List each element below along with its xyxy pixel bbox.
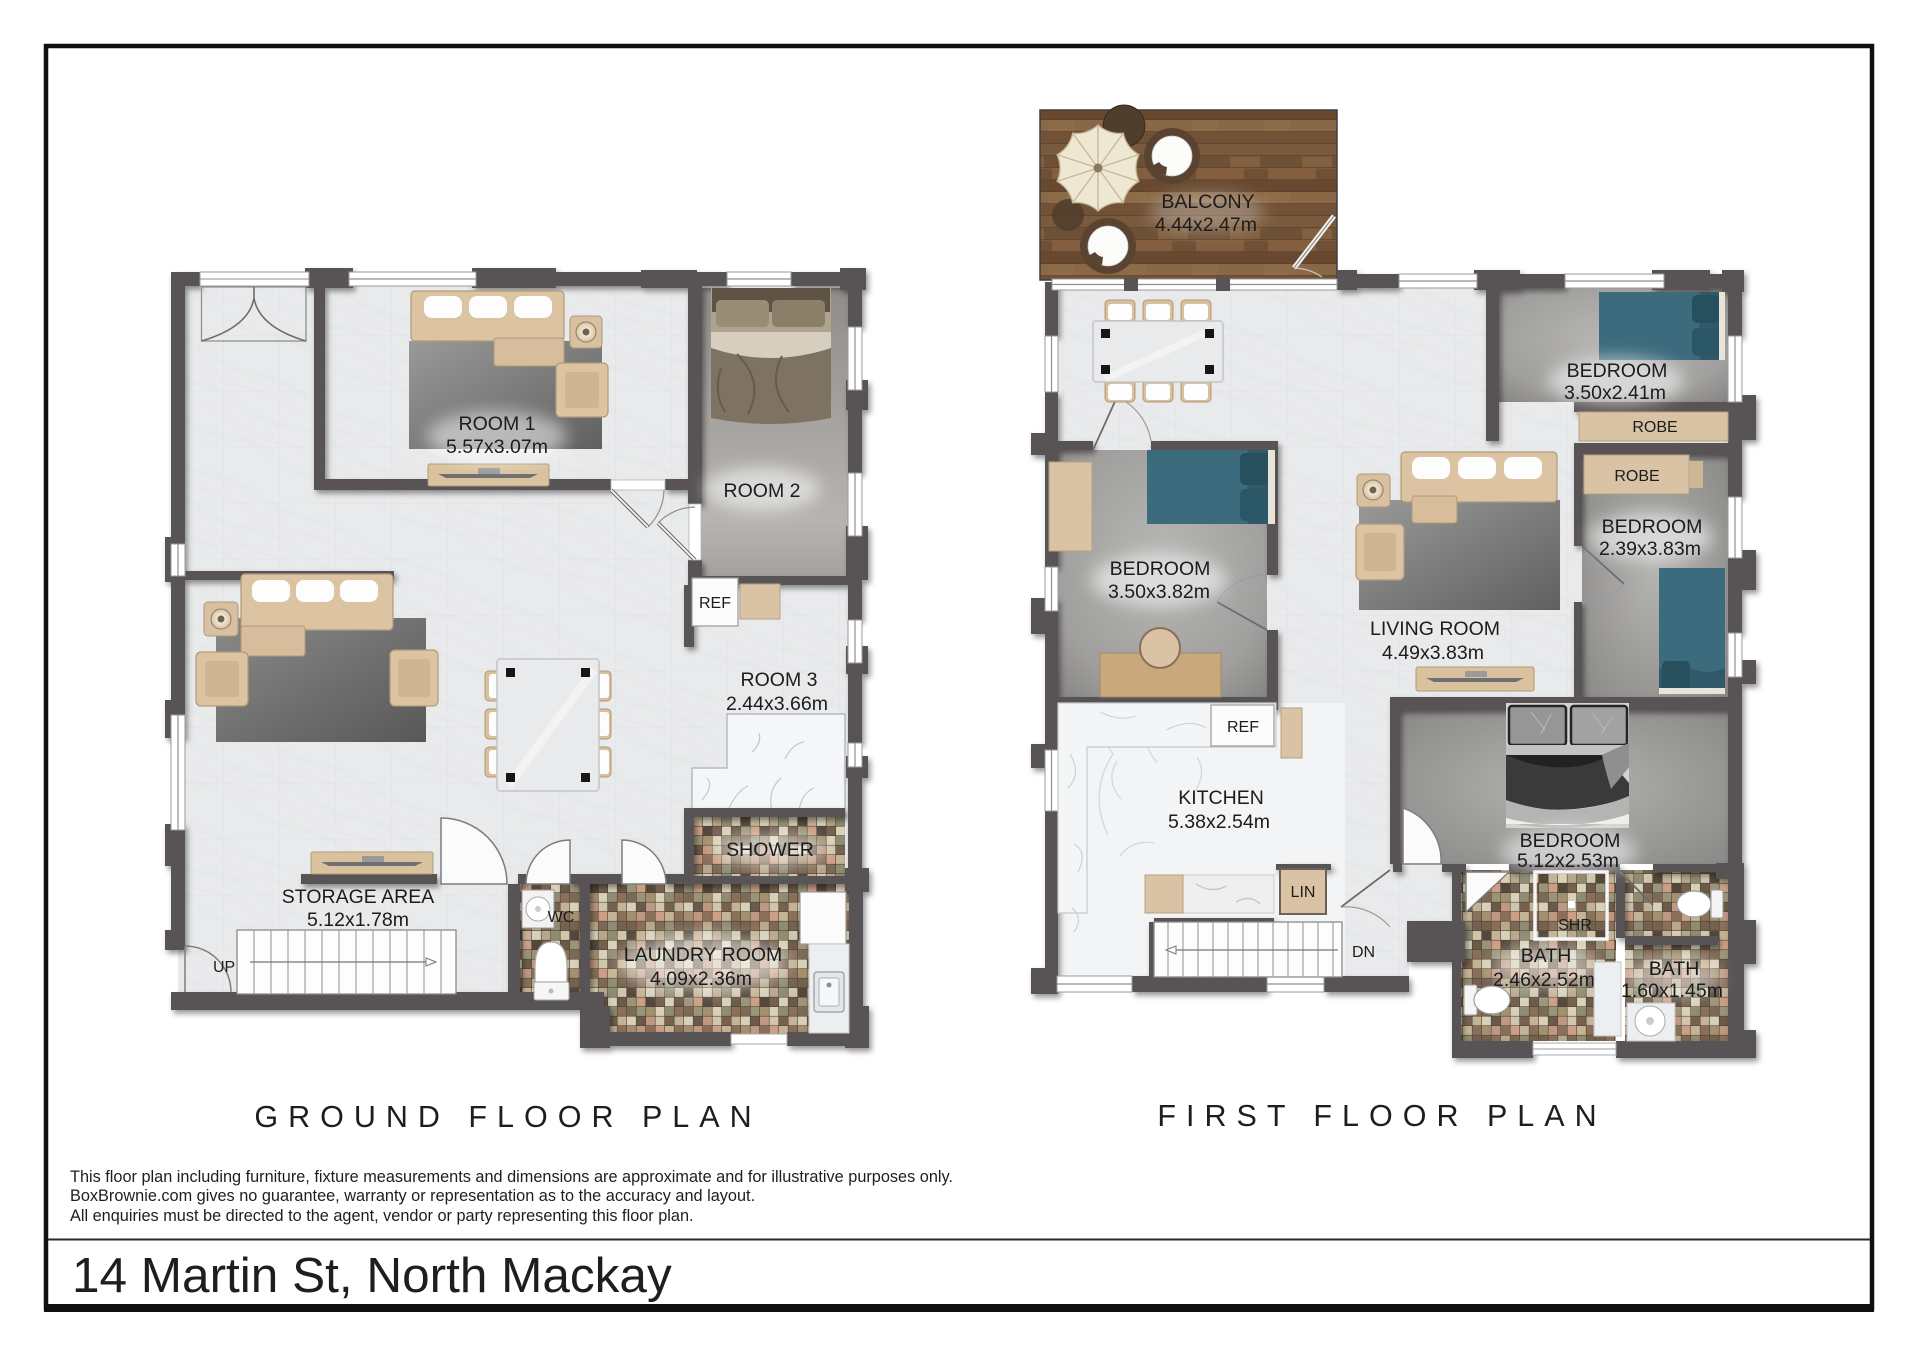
svg-text:SHR: SHR (1558, 917, 1592, 934)
svg-text:1.60x1.45m: 1.60x1.45m (1621, 980, 1723, 1002)
svg-text:GROUND FLOOR PLAN: GROUND FLOOR PLAN (254, 1100, 761, 1134)
svg-text:REF: REF (699, 595, 731, 612)
svg-text:BALCONY: BALCONY (1161, 191, 1254, 213)
svg-text:5.12x2.53m: 5.12x2.53m (1517, 850, 1619, 872)
svg-text:BEDROOM: BEDROOM (1520, 830, 1621, 852)
svg-text:2.44x3.66m: 2.44x3.66m (726, 693, 828, 715)
svg-text:4.49x3.83m: 4.49x3.83m (1382, 642, 1484, 664)
svg-text:2.46x2.52m: 2.46x2.52m (1493, 969, 1595, 991)
svg-text:STORAGE AREA: STORAGE AREA (282, 886, 434, 908)
svg-text:2.39x3.83m: 2.39x3.83m (1599, 538, 1701, 560)
svg-text:REF: REF (1227, 719, 1259, 736)
svg-text:5.57x3.07m: 5.57x3.07m (446, 436, 548, 458)
svg-text:ROOM 2: ROOM 2 (724, 480, 801, 502)
svg-text:ROOM 1: ROOM 1 (459, 413, 536, 435)
svg-text:LIN: LIN (1291, 884, 1316, 901)
svg-text:5.38x2.54m: 5.38x2.54m (1168, 811, 1270, 833)
svg-text:14 Martin St, North Mackay: 14 Martin St, North Mackay (72, 1248, 672, 1303)
svg-text:All enquiries must be directed: All enquiries must be directed to the ag… (70, 1207, 694, 1225)
svg-text:BEDROOM: BEDROOM (1567, 360, 1668, 382)
svg-text:BoxBrownie.com gives no guaran: BoxBrownie.com gives no guarantee, warra… (70, 1187, 755, 1205)
svg-text:BATH: BATH (1649, 958, 1700, 980)
svg-text:3.50x2.41m: 3.50x2.41m (1564, 382, 1666, 404)
svg-text:ROBE: ROBE (1632, 419, 1677, 436)
svg-text:This floor plan including furn: This floor plan including furniture, fix… (70, 1168, 953, 1186)
svg-text:DN: DN (1352, 944, 1375, 961)
svg-text:BEDROOM: BEDROOM (1602, 516, 1703, 538)
svg-text:4.44x2.47m: 4.44x2.47m (1155, 214, 1257, 236)
svg-text:4.09x2.36m: 4.09x2.36m (650, 968, 752, 990)
svg-text:LIVING ROOM: LIVING ROOM (1370, 618, 1500, 640)
svg-text:UP: UP (213, 959, 235, 976)
svg-text:BEDROOM: BEDROOM (1110, 558, 1211, 580)
svg-text:KITCHEN: KITCHEN (1178, 787, 1264, 809)
svg-text:ROBE: ROBE (1614, 468, 1659, 485)
svg-text:LAUNDRY ROOM: LAUNDRY ROOM (624, 944, 783, 966)
svg-text:WC: WC (548, 909, 575, 926)
svg-text:BATH: BATH (1521, 945, 1572, 967)
svg-text:FIRST FLOOR PLAN: FIRST FLOOR PLAN (1157, 1099, 1606, 1133)
svg-text:ROOM 3: ROOM 3 (741, 669, 818, 691)
svg-text:SHOWER: SHOWER (726, 839, 814, 861)
svg-text:5.12x1.78m: 5.12x1.78m (307, 909, 409, 931)
svg-text:3.50x3.82m: 3.50x3.82m (1108, 581, 1210, 603)
